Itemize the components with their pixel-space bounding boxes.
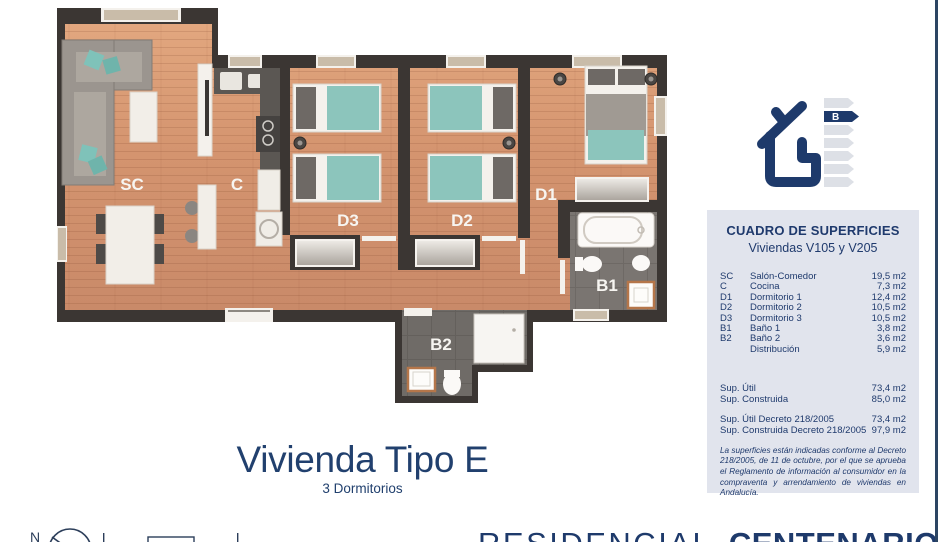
brand-centenario: CENTENARIO xyxy=(729,526,939,542)
footer-divider xyxy=(237,533,238,542)
legal-note: La superficies están indicadas conforme … xyxy=(707,446,919,499)
energy-house-icon xyxy=(762,106,816,182)
surfaces-totals: Sup. Útil 73,4 m2 Sup. Construida 85,0 m… xyxy=(707,384,919,405)
page-title: Vivienda Tipo E xyxy=(140,441,585,478)
room-label-b2: B2 xyxy=(430,335,452,354)
floor-plan: SC C D3 D2 D1 B1 B2 xyxy=(0,0,700,420)
surfaces-decreto: Sup. Útil Decreto 218/2005 73,4 m2 Sup. … xyxy=(707,415,919,436)
compass-needle xyxy=(52,537,70,542)
page-subtitle: 3 Dormitorios xyxy=(140,481,585,496)
room-label-sc: SC xyxy=(120,175,144,194)
room-label-b1: B1 xyxy=(596,276,618,295)
table-row: Distribución 5,9 m2 xyxy=(707,345,919,355)
room-label-d1: D1 xyxy=(535,185,557,204)
room-label-c: C xyxy=(231,175,243,194)
room-label-d2: D2 xyxy=(451,211,473,230)
title-block: Vivienda Tipo E 3 Dormitorios xyxy=(140,441,585,496)
brand-wordmark: RESIDENCIAL CENTENARIO xyxy=(478,526,939,542)
footer-divider xyxy=(103,533,104,542)
room-label-d3: D3 xyxy=(337,211,359,230)
energy-rating-letter: B xyxy=(832,112,839,123)
developer-logo xyxy=(148,537,194,542)
brand-residencial: RESIDENCIAL xyxy=(478,526,712,542)
compass-north-label: N xyxy=(30,529,40,542)
surfaces-title: CUADRO DE SUPERFICIES xyxy=(707,223,919,238)
brochure-page: SC C D3 D2 D1 B1 B2 B CUADRO DE SUPERFI xyxy=(0,0,948,542)
table-row: Sup. Construida 85,0 m2 xyxy=(707,395,919,406)
surfaces-panel: CUADRO DE SUPERFICIES Viviendas V105 y V… xyxy=(707,210,919,493)
energy-bars: B xyxy=(824,98,859,187)
table-row: Sup. Construida Decreto 218/2005 97,9 m2 xyxy=(707,426,919,437)
surfaces-subtitle: Viviendas V105 y V205 xyxy=(707,241,919,255)
footer-marks: N xyxy=(0,515,470,542)
page-border xyxy=(935,0,938,542)
energy-rating-icon: B xyxy=(748,84,866,196)
surfaces-table: SC Salón-Comedor 19,5 m2 C Cocina 7,3 m2… xyxy=(707,272,919,355)
